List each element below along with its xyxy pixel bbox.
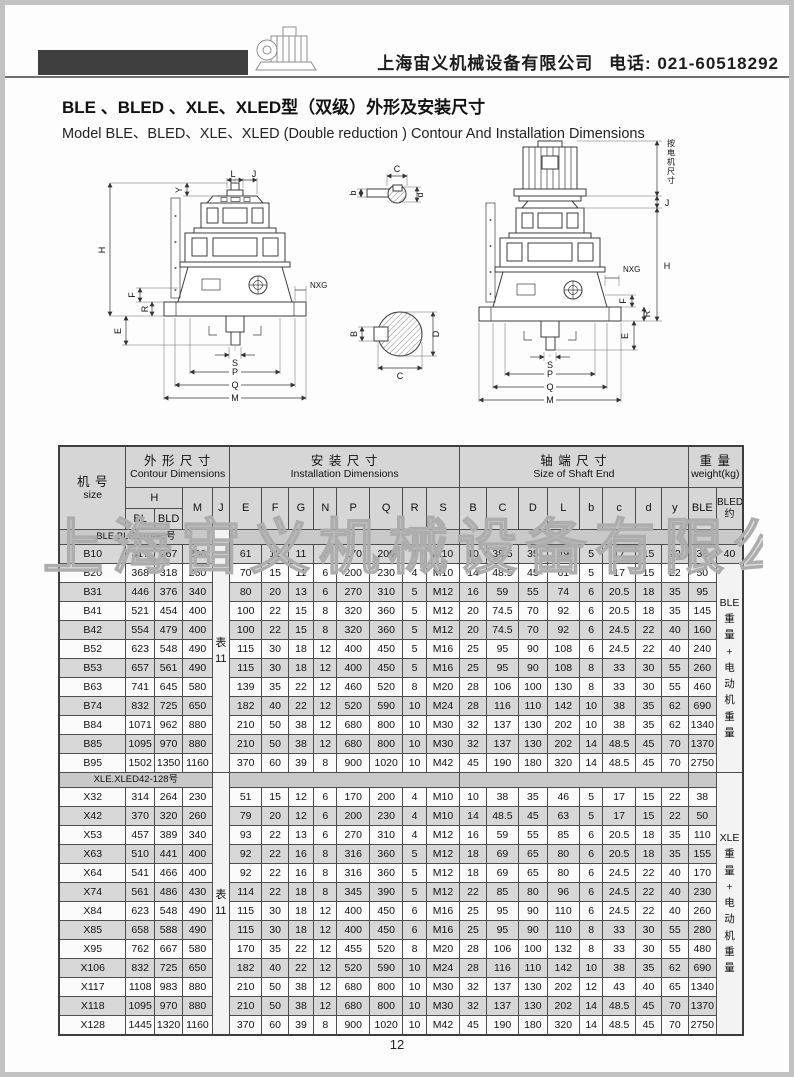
table-cell: 1502 — [126, 754, 154, 773]
table-cell: 1160 — [183, 1016, 212, 1035]
table-cell: 6 — [314, 583, 337, 602]
table-cell: 22 — [288, 678, 313, 697]
table-cell: 60 — [262, 754, 288, 773]
table-cell: 588 — [154, 921, 182, 940]
table-cell: 5 — [403, 583, 426, 602]
table-cell: 16 — [288, 845, 313, 864]
table-cell: 645 — [154, 678, 182, 697]
table-cell: 45 — [635, 735, 661, 754]
table-cell: 962 — [154, 716, 182, 735]
table-cell: 116 — [486, 697, 518, 716]
table-row: B84107196288021050381268080010M303213713… — [59, 716, 743, 735]
col-header-c: c — [603, 488, 635, 530]
table-cell — [460, 773, 688, 788]
table-cell: 800 — [369, 978, 402, 997]
size-cell: B52 — [59, 640, 126, 659]
table-cell: 762 — [126, 940, 154, 959]
size-cell: B74 — [59, 697, 126, 716]
col-header-M: M — [183, 488, 212, 530]
table-cell: 50 — [688, 564, 716, 583]
table-cell: 12 — [314, 959, 337, 978]
table-cell: 446 — [126, 583, 154, 602]
table-cell: 318 — [154, 564, 182, 583]
table-cell: 10 — [580, 697, 603, 716]
table-cell: 32 — [460, 716, 486, 735]
table-cell: M10 — [426, 564, 460, 583]
table-cell: 100 — [229, 621, 261, 640]
col-group-installation-zh: 安 装 尺 寸 — [230, 454, 459, 468]
table-cell: 38 — [288, 716, 313, 735]
table-cell: 8 — [403, 678, 426, 697]
table-cell: 4 — [403, 564, 426, 583]
size-cell: X42 — [59, 807, 126, 826]
table-cell: 441 — [154, 845, 182, 864]
table-cell: 5 — [580, 545, 603, 564]
size-cell: B31 — [59, 583, 126, 602]
table-cell: 130 — [519, 716, 547, 735]
table-cell: 35 — [519, 788, 547, 807]
table-cell: 170 — [229, 940, 261, 959]
table-cell: 24.5 — [603, 883, 635, 902]
table-cell: 38 — [486, 788, 518, 807]
table-cell: 658 — [126, 921, 154, 940]
table-cell: 182 — [229, 697, 261, 716]
table-cell: 450 — [369, 659, 402, 678]
table-cell: 50 — [262, 997, 288, 1016]
table-cell: 100 — [519, 940, 547, 959]
table-cell: 10 — [403, 754, 426, 773]
table-cell: 22 — [262, 602, 288, 621]
table-cell: 1350 — [154, 754, 182, 773]
table-row: X12814451320116037060398900102010M424519… — [59, 1016, 743, 1035]
col-header-size: 机 号 size — [59, 446, 126, 530]
table-cell: 580 — [183, 678, 212, 697]
dim-label-P: P — [232, 367, 238, 377]
table-cell: 15 — [635, 807, 661, 826]
table-cell: 12 — [314, 921, 337, 940]
table-cell: 317 — [126, 545, 154, 564]
table-cell: 65 — [662, 978, 688, 997]
size-cell: X32 — [59, 788, 126, 807]
table-cell: 1020 — [369, 1016, 402, 1035]
table-cell: 92 — [229, 845, 261, 864]
table-cell: 70 — [229, 564, 261, 583]
table-cell: 486 — [154, 883, 182, 902]
table-cell: 100 — [229, 602, 261, 621]
table-cell: 45 — [635, 1016, 661, 1035]
table-cell: 12 — [314, 697, 337, 716]
table-cell: 74.5 — [486, 621, 518, 640]
dim-label-Q-right: Q — [546, 382, 553, 392]
table-cell: 680 — [337, 997, 369, 1016]
table-cell: 55 — [662, 921, 688, 940]
table-cell: 280 — [688, 921, 716, 940]
table-cell: 45 — [460, 754, 486, 773]
col-header-y: y — [662, 488, 688, 530]
table-cell: 17 — [603, 807, 635, 826]
table-cell: 14 — [580, 735, 603, 754]
dim-label-H: H — [97, 247, 107, 254]
table-cell: 108 — [547, 659, 579, 678]
table-cell: 25 — [460, 921, 486, 940]
table-cell: 741 — [126, 678, 154, 697]
table-cell: 8 — [314, 754, 337, 773]
table-cell: 96 — [547, 883, 579, 902]
table-cell: M12 — [426, 583, 460, 602]
table-cell: 65 — [519, 864, 547, 883]
table-cell: M12 — [426, 826, 460, 845]
table-cell: 260 — [183, 807, 212, 826]
table-cell: 48.5 — [603, 754, 635, 773]
table-body: BLE.BLED10-95号表11B1031726723061121161702… — [59, 530, 743, 1035]
table-cell: 1020 — [369, 754, 402, 773]
table-cell: 70 — [662, 754, 688, 773]
table-cell: 24.5 — [603, 621, 635, 640]
table-cell: 6 — [403, 921, 426, 940]
motor-logo-icon — [253, 10, 325, 78]
table-cell: 360 — [369, 845, 402, 864]
table-cell: 48.5 — [603, 1016, 635, 1035]
dim-label-D-side: D — [431, 330, 441, 337]
table-cell: M42 — [426, 1016, 460, 1035]
table-cell: 61 — [547, 564, 579, 583]
table-cell: 6 — [314, 807, 337, 826]
table-cell — [229, 530, 459, 545]
table-cell: 40 — [662, 902, 688, 921]
table-cell: 110 — [547, 902, 579, 921]
table-row: X846235484901153018124004506M16259590110… — [59, 902, 743, 921]
table-row: B7483272565018240221252059010M2428116110… — [59, 697, 743, 716]
table-cell: 490 — [183, 902, 212, 921]
table-cell: 400 — [337, 659, 369, 678]
table-cell: 430 — [183, 883, 212, 902]
table-cell: 18 — [288, 640, 313, 659]
table-cell: 4 — [403, 788, 426, 807]
table-cell: 623 — [126, 640, 154, 659]
table-cell: 22 — [635, 621, 661, 640]
table-cell: 85 — [547, 826, 579, 845]
table-cell: 38 — [688, 788, 716, 807]
table-cell: 33 — [603, 940, 635, 959]
table-cell: 680 — [337, 735, 369, 754]
table-cell: 22 — [460, 883, 486, 902]
table-cell: 90 — [519, 902, 547, 921]
table-cell: 6 — [314, 545, 337, 564]
table-cell: 1445 — [126, 1016, 154, 1035]
table-cell: 40 — [262, 959, 288, 978]
table-cell: 800 — [369, 735, 402, 754]
dim-label-J: J — [252, 169, 257, 179]
table-cell: 137 — [486, 978, 518, 997]
scanned-catalog-page: { "header": { "company": "上海宙义机械设备有限公司",… — [0, 0, 794, 1077]
table-cell: 8 — [580, 921, 603, 940]
table-cell: 14 — [580, 1016, 603, 1035]
table-cell: 25 — [460, 640, 486, 659]
table-cell: 6 — [580, 902, 603, 921]
table-cell: 22 — [262, 864, 288, 883]
table-cell: 6 — [580, 621, 603, 640]
table-cell: 62 — [662, 716, 688, 735]
table-cell: 200 — [369, 545, 402, 564]
table-cell: 6 — [314, 564, 337, 583]
table-cell: 62 — [662, 697, 688, 716]
table-cell: 50 — [688, 807, 716, 826]
table-cell: 142 — [547, 959, 579, 978]
table-cell: 90 — [519, 640, 547, 659]
table-group-row: XLE.XLED42-128号表11XLE重量+电动机重量 — [59, 773, 743, 788]
table-cell: 970 — [154, 997, 182, 1016]
table-cell: 11 — [288, 545, 313, 564]
table-cell: 5 — [580, 788, 603, 807]
table-cell: M30 — [426, 997, 460, 1016]
table-cell: 17 — [603, 545, 635, 564]
table-cell: 6 — [314, 826, 337, 845]
table-cell: 202 — [547, 716, 579, 735]
table-cell: 80 — [547, 864, 579, 883]
outline-drawing-left: H Y L J F R E NXG — [97, 169, 327, 403]
table-cell: 880 — [183, 735, 212, 754]
table-cell: 10 — [403, 997, 426, 1016]
table-cell: 155 — [688, 845, 716, 864]
table-cell: 650 — [183, 697, 212, 716]
table-cell: 210 — [229, 997, 261, 1016]
table-cell: 725 — [154, 959, 182, 978]
table-cell: 40 — [635, 978, 661, 997]
table-cell: 6 — [580, 640, 603, 659]
dim-label-R-right: R — [642, 310, 652, 317]
table-cell: 264 — [154, 788, 182, 807]
table-cell: 561 — [154, 659, 182, 678]
size-cell: B53 — [59, 659, 126, 678]
col-group-weight-en: weight(kg) — [689, 468, 742, 480]
table-cell: 92 — [229, 864, 261, 883]
table-row: B3144637634080201362703105M1216595574620… — [59, 583, 743, 602]
table-cell: M10 — [426, 545, 460, 564]
table-cell: 38 — [603, 716, 635, 735]
col-group-weight: 重 量 weight(kg) — [688, 446, 743, 488]
table-cell: 5 — [580, 564, 603, 583]
table-cell: 130 — [519, 735, 547, 754]
size-cell: X63 — [59, 845, 126, 864]
table-cell: 160 — [688, 621, 716, 640]
table-cell: 95 — [486, 640, 518, 659]
company-name: 上海宙义机械设备有限公司 — [377, 54, 593, 73]
table-cell: 145 — [688, 602, 716, 621]
dim-label-Y: Y — [174, 187, 184, 193]
table-cell: 983 — [154, 978, 182, 997]
table-cell: 8 — [314, 845, 337, 864]
table-cell: 12 — [314, 678, 337, 697]
table-cell: 900 — [337, 754, 369, 773]
table-cell: 520 — [369, 678, 402, 697]
table-cell: 20.5 — [603, 845, 635, 864]
table-cell: 132 — [547, 940, 579, 959]
col-header-H: H — [126, 488, 183, 509]
table-cell: 35 — [662, 602, 688, 621]
table-row: X6351044140092221683163605M1218696580620… — [59, 845, 743, 864]
table-cell: 48.5 — [603, 735, 635, 754]
table-cell: 230 — [183, 545, 212, 564]
table-cell: 210 — [229, 735, 261, 754]
table-cell — [688, 773, 716, 788]
table-cell: 270 — [337, 826, 369, 845]
col-header-F: F — [262, 488, 288, 530]
table-cell: 590 — [369, 697, 402, 716]
table-cell: 92 — [547, 621, 579, 640]
table-cell: 80 — [229, 583, 261, 602]
table-cell: 389 — [154, 826, 182, 845]
table-cell: 6 — [580, 845, 603, 864]
col-header-BL: BL — [126, 509, 154, 530]
table-cell: 33 — [603, 921, 635, 940]
table-cell: 1071 — [126, 716, 154, 735]
table-cell: 20.5 — [603, 583, 635, 602]
table-cell: 180 — [519, 1016, 547, 1035]
table-cell: M16 — [426, 640, 460, 659]
table-cell: 1340 — [688, 978, 716, 997]
table-cell: 541 — [126, 864, 154, 883]
table-cell: 230 — [688, 883, 716, 902]
table-cell: 6 — [580, 883, 603, 902]
table-cell: 46 — [547, 788, 579, 807]
col-header-BLE: BLE — [688, 488, 716, 530]
table-cell: 22 — [662, 545, 688, 564]
col-group-installation: 安 装 尺 寸 Installation Dimensions — [229, 446, 459, 488]
table-cell: 30 — [635, 659, 661, 678]
table-cell: 8 — [314, 864, 337, 883]
table-cell: 6 — [580, 864, 603, 883]
table-cell: 20 — [460, 621, 486, 640]
size-cell: X74 — [59, 883, 126, 902]
table-cell: 48.5 — [603, 997, 635, 1016]
col-group-weight-zh: 重 量 — [689, 454, 742, 468]
table-cell: 18 — [460, 864, 486, 883]
col-header-B: B — [460, 488, 486, 530]
j-note-cell: 表11 — [212, 773, 229, 1035]
table-cell: 460 — [688, 678, 716, 697]
col-header-size-en: size — [60, 489, 125, 501]
table-cell: 22 — [635, 864, 661, 883]
table-cell: 360 — [369, 602, 402, 621]
table-cell: 623 — [126, 902, 154, 921]
table-cell: 55 — [662, 940, 688, 959]
table-cell: 1320 — [154, 1016, 182, 1035]
table-cell: 548 — [154, 640, 182, 659]
table-cell: 970 — [154, 735, 182, 754]
table-cell: 5 — [580, 807, 603, 826]
table-cell: 74.5 — [486, 602, 518, 621]
table-cell: 32 — [460, 978, 486, 997]
table-cell: 18 — [288, 902, 313, 921]
table-cell: 368 — [126, 564, 154, 583]
table-cell: 95 — [486, 902, 518, 921]
table-cell: 479 — [154, 621, 182, 640]
size-cell: X106 — [59, 959, 126, 978]
dim-label-E-right: E — [620, 333, 630, 339]
table-cell: 4 — [403, 826, 426, 845]
table-cell: 12 — [314, 716, 337, 735]
bled-weight-cell: 40 — [717, 545, 744, 564]
table-cell: 690 — [688, 697, 716, 716]
table-cell: 520 — [337, 959, 369, 978]
table-cell: 510 — [126, 845, 154, 864]
table-cell: 18 — [288, 883, 313, 902]
table-header: 机 号 size 外 形 尺 寸 Contour Dimensions 安 装 … — [59, 446, 743, 530]
table-cell: 320 — [154, 807, 182, 826]
dim-label-R: R — [140, 305, 150, 312]
table-cell: 33 — [603, 659, 635, 678]
col-header-b: b — [580, 488, 603, 530]
table-cell: 35 — [635, 716, 661, 735]
table-cell: 260 — [183, 564, 212, 583]
table-cell: M24 — [426, 697, 460, 716]
table-cell: 15 — [635, 788, 661, 807]
table-cell: 110 — [519, 697, 547, 716]
table-cell — [688, 530, 716, 545]
col-header-N: N — [314, 488, 337, 530]
table-cell: 580 — [183, 940, 212, 959]
table-cell: 35 — [635, 697, 661, 716]
table-cell: 6 — [580, 602, 603, 621]
table-cell: 1108 — [126, 978, 154, 997]
table-cell: 667 — [154, 940, 182, 959]
table-cell: 55 — [519, 826, 547, 845]
table-cell: 202 — [547, 735, 579, 754]
table-cell: 260 — [688, 659, 716, 678]
table-cell: 22 — [662, 788, 688, 807]
table-cell: 8 — [580, 678, 603, 697]
table-cell: 310 — [369, 583, 402, 602]
table-cell: 15 — [262, 788, 288, 807]
table-cell: 115 — [229, 902, 261, 921]
table-cell: 43 — [603, 978, 635, 997]
table-cell: 110 — [688, 826, 716, 845]
dim-label-F: F — [127, 292, 137, 298]
table-cell: 400 — [337, 640, 369, 659]
table-cell: 230 — [183, 788, 212, 807]
table-cell: 2750 — [688, 1016, 716, 1035]
table-cell: 5 — [403, 659, 426, 678]
outline-drawing-right: 按电机尺寸 J H NXG F R E S — [479, 138, 675, 405]
table-cell: 30 — [262, 659, 288, 678]
table-cell: 2750 — [688, 754, 716, 773]
table-cell: 48.5 — [486, 564, 518, 583]
table-cell: 12 — [314, 735, 337, 754]
col-header-size-zh: 机 号 — [60, 475, 125, 489]
dim-label-b-small: b — [348, 190, 358, 195]
table-cell: 15 — [288, 621, 313, 640]
table-cell: M10 — [426, 807, 460, 826]
table-cell: 12 — [314, 978, 337, 997]
table-cell: 61 — [229, 545, 261, 564]
table-cell: 48.5 — [486, 807, 518, 826]
table-cell: 10 — [403, 697, 426, 716]
company-header: 上海宙义机械设备有限公司 电话: 021-60518292 — [367, 49, 779, 74]
table-cell: 880 — [183, 997, 212, 1016]
table-row: X74561486430114221883453905M122285809662… — [59, 883, 743, 902]
table-cell: 39 — [288, 1016, 313, 1035]
table-cell: 39 — [288, 754, 313, 773]
dim-label-C-bottom: C — [397, 371, 404, 381]
col-header-C: C — [486, 488, 518, 530]
table-cell: 8 — [580, 659, 603, 678]
col-group-contour-zh: 外 形 尺 寸 — [126, 454, 228, 468]
table-cell: 70 — [519, 602, 547, 621]
table-cell: 170 — [688, 864, 716, 883]
size-cell: B85 — [59, 735, 126, 754]
table-cell: 106 — [486, 678, 518, 697]
table-cell: 51 — [229, 788, 261, 807]
